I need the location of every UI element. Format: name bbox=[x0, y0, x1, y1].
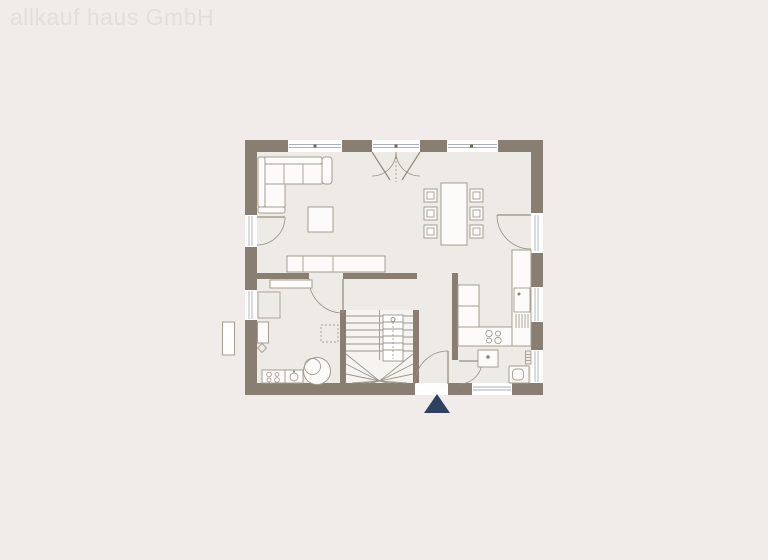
window-top-right bbox=[447, 140, 498, 152]
chair bbox=[470, 225, 483, 238]
sideboard bbox=[287, 256, 385, 272]
chair bbox=[470, 207, 483, 220]
chair bbox=[424, 189, 437, 202]
wc-toilet bbox=[509, 366, 529, 383]
wc-side-window bbox=[531, 350, 543, 383]
washer-unit bbox=[262, 370, 285, 383]
upper-flight bbox=[383, 315, 403, 361]
coffee-table bbox=[308, 207, 333, 232]
floorplan-drawing bbox=[0, 0, 768, 560]
staircase bbox=[346, 310, 413, 383]
window-top-left bbox=[288, 140, 342, 152]
exterior-light-well bbox=[223, 322, 235, 355]
kitchen-window bbox=[531, 287, 543, 322]
utility-shelf bbox=[270, 280, 312, 288]
chair bbox=[424, 225, 437, 238]
wc-washbasin bbox=[478, 350, 498, 367]
boiler-tank bbox=[304, 358, 331, 385]
chair bbox=[470, 189, 483, 202]
dining-table bbox=[441, 183, 467, 245]
floorplan-canvas: allkauf haus GmbH bbox=[0, 0, 768, 560]
wc-bottom-window bbox=[472, 383, 512, 395]
utility-sink-unit bbox=[285, 370, 303, 383]
chair bbox=[424, 207, 437, 220]
entrance-marker-triangle-icon bbox=[424, 394, 450, 413]
